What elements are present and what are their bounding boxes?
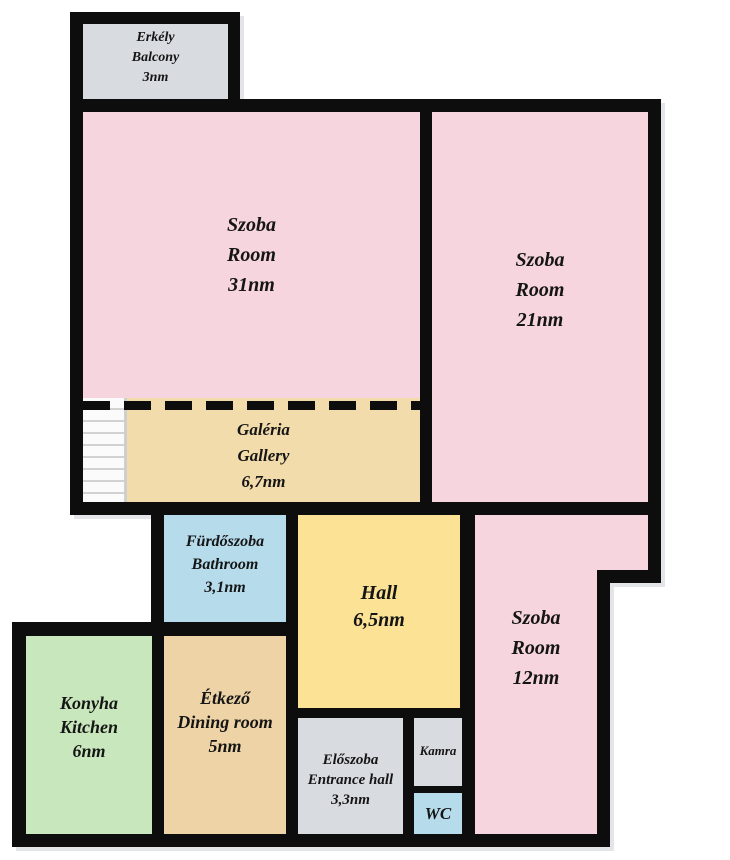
room-name-en: Room xyxy=(475,633,597,663)
room-name-en: Gallery xyxy=(107,443,420,469)
label-kitchen: Konyha Kitchen 6nm xyxy=(26,691,152,763)
room-name-hu: Szoba xyxy=(83,210,420,240)
floor-plan: Erkély Balcony 3nm Szoba Room 31nm Szoba… xyxy=(0,0,730,860)
room-name-en: Bathroom xyxy=(164,553,286,576)
room-name-en: Balcony xyxy=(83,48,228,68)
label-entrance: Előszoba Entrance hall 3,3nm xyxy=(295,750,406,810)
room-name-hu: Kamra xyxy=(410,744,466,758)
room-name: Hall xyxy=(298,580,460,607)
room-name-en: Room xyxy=(83,240,420,270)
label-room21: Szoba Room 21nm xyxy=(432,245,648,335)
room-name-hu: Étkező xyxy=(150,686,300,710)
room-area: 6,7nm xyxy=(107,469,420,495)
label-dining: Étkező Dining room 5nm xyxy=(150,686,300,758)
room-area: 3,1nm xyxy=(164,576,286,599)
room-area: 6nm xyxy=(26,739,152,763)
room-name-en: Dining room xyxy=(150,710,300,734)
room-area: 12nm xyxy=(475,663,597,693)
dashed-gallery-boundary xyxy=(83,401,420,410)
room-name-hu: Előszoba xyxy=(295,750,406,770)
room-area: 3,3nm xyxy=(295,790,406,810)
label-room31: Szoba Room 31nm xyxy=(83,210,420,300)
label-pantry: Kamra xyxy=(410,744,466,758)
label-hall: Hall 6,5nm xyxy=(298,580,460,634)
room-name-en: Kitchen xyxy=(26,715,152,739)
room-name-en: Room xyxy=(432,275,648,305)
room-name-hu: Konyha xyxy=(26,691,152,715)
room-name: WC xyxy=(414,805,462,823)
room-area: 31nm xyxy=(83,270,420,300)
label-bathroom: Fürdőszoba Bathroom 3,1nm xyxy=(164,530,286,599)
room-name-hu: Fürdőszoba xyxy=(164,530,286,553)
room-name-hu: Galéria xyxy=(107,417,420,443)
room-area: 5nm xyxy=(150,734,300,758)
room-name-hu: Szoba xyxy=(432,245,648,275)
label-room12: Szoba Room 12nm xyxy=(475,603,597,693)
label-wc: WC xyxy=(414,805,462,823)
label-balcony: Erkély Balcony 3nm xyxy=(83,28,228,88)
label-gallery: Galéria Gallery 6,7nm xyxy=(107,417,420,495)
room-area: 6,5nm xyxy=(298,607,460,634)
room-name-hu: Erkély xyxy=(83,28,228,48)
room-area: 3nm xyxy=(83,68,228,88)
room-name-hu: Szoba xyxy=(475,603,597,633)
room-name-en: Entrance hall xyxy=(295,770,406,790)
room-area: 21nm xyxy=(432,305,648,335)
